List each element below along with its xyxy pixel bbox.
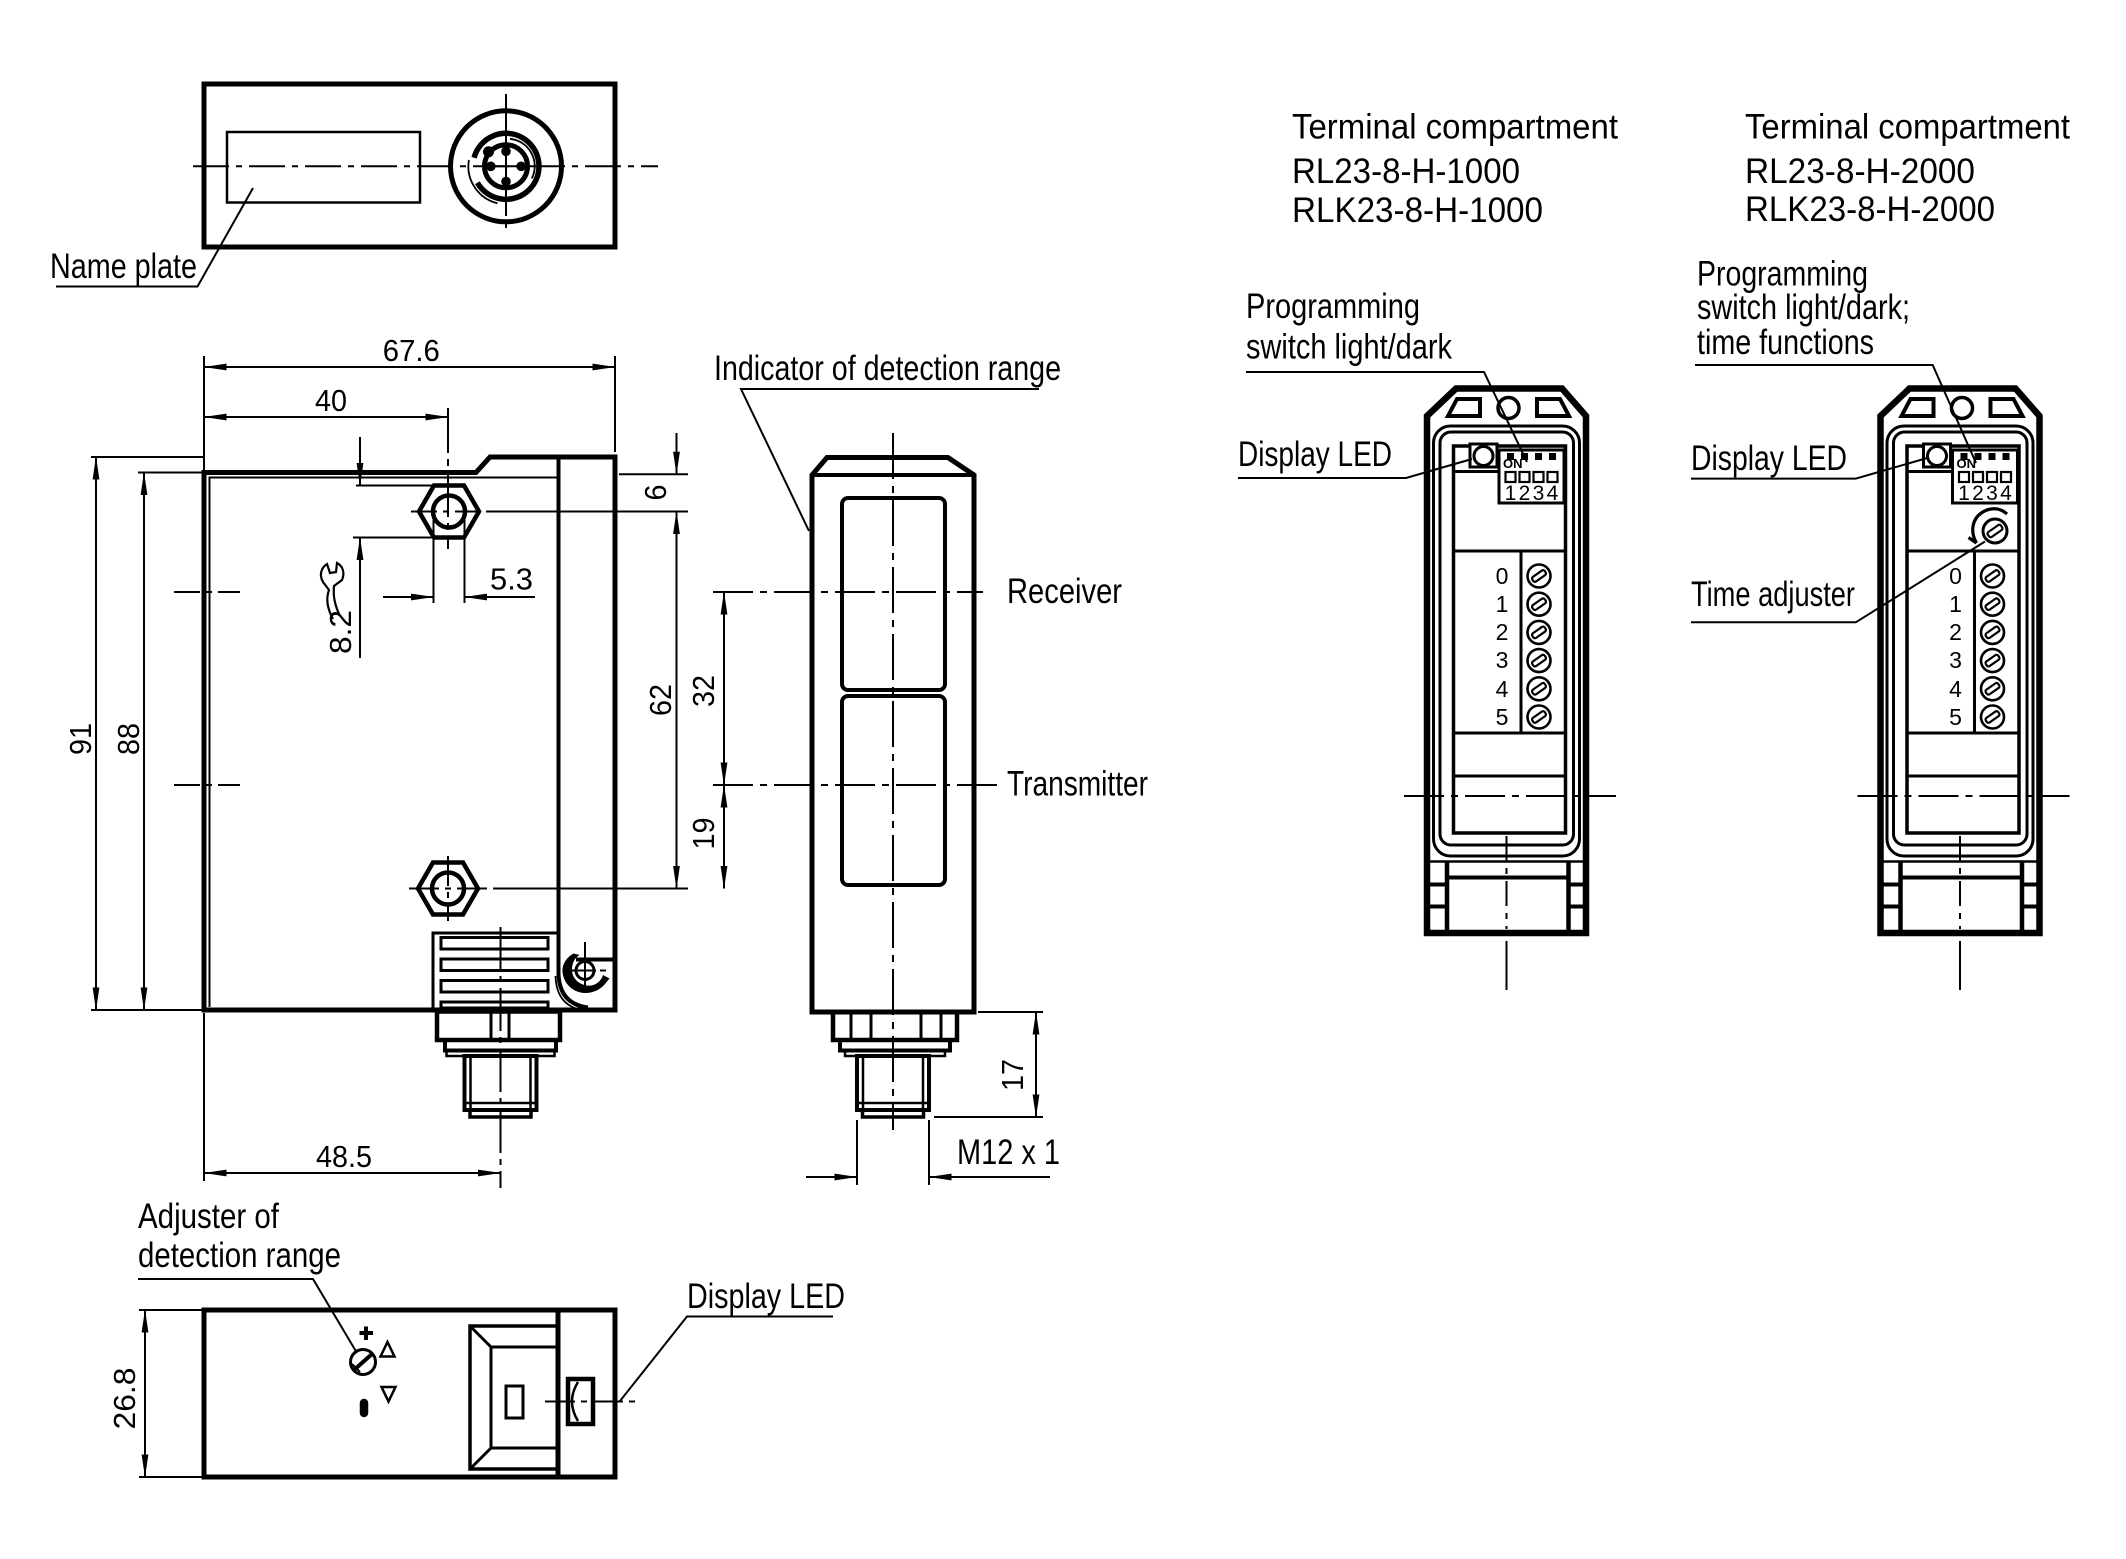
svg-text:32: 32: [686, 675, 721, 707]
svg-text:Display LED: Display LED: [1238, 435, 1392, 474]
svg-text:Display LED: Display LED: [687, 1277, 845, 1316]
svg-text:8.2: 8.2: [323, 610, 358, 654]
svg-text:Adjuster of: Adjuster of: [138, 1197, 279, 1236]
svg-text:88: 88: [111, 723, 146, 755]
svg-text:67.6: 67.6: [383, 333, 440, 368]
svg-text:26.8: 26.8: [107, 1368, 142, 1430]
svg-text:RL23-8-H-2000: RL23-8-H-2000: [1745, 152, 1975, 191]
svg-text:Time adjuster: Time adjuster: [1691, 575, 1855, 614]
svg-text:Display LED: Display LED: [1691, 439, 1847, 478]
svg-text:48.5: 48.5: [316, 1139, 372, 1174]
svg-text:RLK23-8-H-2000: RLK23-8-H-2000: [1745, 190, 1995, 229]
svg-text:17: 17: [995, 1059, 1030, 1091]
svg-text:switch light/dark: switch light/dark: [1246, 328, 1452, 367]
svg-text:Transmitter: Transmitter: [1007, 765, 1148, 804]
svg-text:5.3: 5.3: [490, 562, 533, 597]
svg-text:switch light/dark;: switch light/dark;: [1697, 288, 1910, 327]
svg-text:Receiver: Receiver: [1007, 572, 1122, 611]
svg-text:40: 40: [315, 383, 347, 418]
svg-text:RL23-8-H-1000: RL23-8-H-1000: [1292, 152, 1520, 191]
svg-text:Indicator of detection range: Indicator of detection range: [714, 349, 1061, 388]
svg-text:RLK23-8-H-1000: RLK23-8-H-1000: [1292, 191, 1543, 230]
svg-text:91: 91: [63, 723, 98, 755]
svg-text:Terminal compartment: Terminal compartment: [1292, 108, 1618, 147]
svg-text:M12 x 1: M12 x 1: [957, 1133, 1060, 1172]
svg-text:detection range: detection range: [138, 1236, 341, 1275]
svg-text:6: 6: [638, 485, 673, 501]
svg-text:Name plate: Name plate: [50, 247, 197, 286]
svg-text:62: 62: [643, 684, 678, 716]
svg-text:Terminal compartment: Terminal compartment: [1745, 108, 2070, 147]
svg-text:Programming: Programming: [1246, 287, 1420, 326]
svg-text:time functions: time functions: [1697, 323, 1874, 362]
svg-text:19: 19: [686, 818, 721, 850]
